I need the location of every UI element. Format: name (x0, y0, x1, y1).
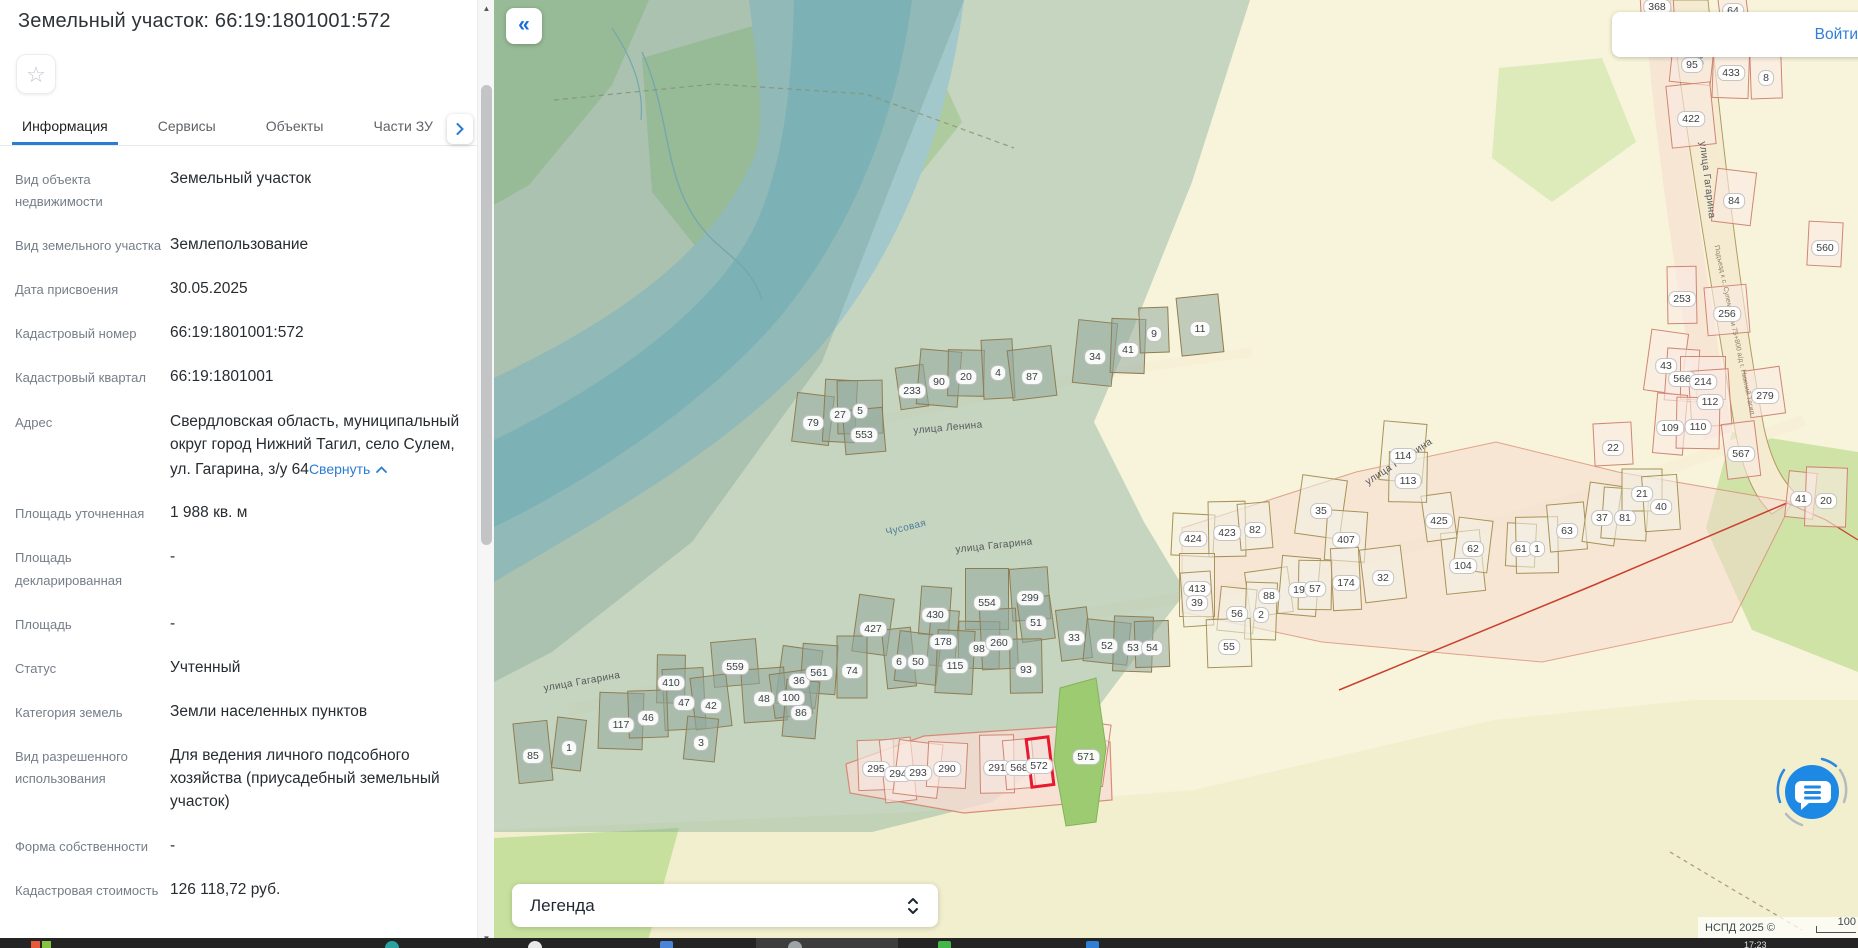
parcel-badge[interactable]: 9 (1146, 326, 1162, 342)
tab-bar: ИнформацияСервисыОбъектыЧасти ЗУСостав (0, 110, 477, 146)
field-label: Площадь уточненная (15, 501, 170, 525)
field-value: Земельный участок (170, 167, 465, 213)
panel-scrollbar[interactable]: ▲ ▼ (477, 0, 494, 948)
parcel-badge[interactable]: 41 (1790, 491, 1812, 507)
parcel-badge[interactable]: 113 (1395, 473, 1422, 489)
login-bar[interactable]: Войти (1612, 12, 1858, 57)
tab-Информация[interactable]: Информация (12, 110, 118, 145)
parcel-badge[interactable]: 4 (990, 365, 1006, 381)
parcel-badge[interactable]: 20 (955, 369, 977, 385)
parcel-badge[interactable]: 290 (933, 761, 961, 777)
field-row: Кадастровая стоимость126 118,72 руб. (15, 878, 477, 902)
taskbar-active-app[interactable] (756, 938, 898, 948)
parcel-badge[interactable]: 256 (1713, 306, 1741, 322)
parcel-badge[interactable]: 567 (1727, 446, 1755, 462)
windows-start-icon[interactable] (31, 941, 40, 948)
parcel-badge[interactable]: 90 (928, 374, 950, 390)
field-row: Дата присвоения30.05.2025 (15, 277, 477, 301)
parcel-badge[interactable]: 114 (1390, 448, 1417, 464)
parcel-badge[interactable]: 62 (1462, 541, 1484, 557)
parcel-badge[interactable]: 430 (921, 607, 949, 623)
parcel-badge[interactable]: 553 (850, 427, 878, 443)
parcel-badge[interactable]: 37 (1591, 510, 1613, 526)
scroll-up-icon[interactable]: ▲ (478, 0, 495, 16)
windows-taskbar[interactable]: 17:23 (0, 938, 1858, 948)
parcel-badge[interactable]: 32 (1372, 570, 1394, 586)
parcel-badge[interactable]: 55 (1218, 639, 1240, 655)
parcel-badge[interactable]: 110 (1685, 419, 1712, 435)
parcel-badge[interactable]: 100 (777, 690, 805, 706)
parcel-badge[interactable]: 47 (673, 695, 695, 711)
parcel-badge[interactable]: 56 (1226, 606, 1248, 622)
taskbar-app-icon-green[interactable] (938, 941, 951, 948)
taskbar-app-icon-white[interactable] (528, 941, 542, 948)
taskbar-app-icon-gray[interactable] (788, 941, 802, 948)
field-label: Адрес (15, 410, 170, 482)
parcel-badge[interactable]: 433 (1717, 65, 1745, 81)
field-value: - (170, 545, 465, 591)
taskbar-app-icon-blue[interactable] (660, 941, 673, 948)
app-window: Земельный участок: 66:19:1801001:572 ☆ И… (0, 0, 1858, 948)
field-value: 126 118,72 руб. (170, 878, 465, 902)
field-label: Площадь декларированная (15, 545, 170, 591)
field-value: 1 988 кв. м (170, 501, 465, 525)
taskbar-clock: 17:23 (1744, 940, 1767, 948)
parcel-badge[interactable]: 293 (904, 765, 932, 781)
parcel-badge[interactable]: 3 (693, 735, 709, 751)
field-label: Дата присвоения (15, 277, 170, 301)
parcel-badge[interactable]: 233 (898, 383, 926, 399)
tab-scroll-right-button[interactable] (447, 114, 473, 144)
collapse-panel-button[interactable]: « (506, 8, 542, 44)
taskbar-app-icon-blue2[interactable] (1086, 941, 1099, 948)
parcel-badge[interactable]: 52 (1096, 638, 1118, 654)
field-value: 66:19:1801001 (170, 365, 465, 389)
field-row: АдресСвердловская область, муниципальный… (15, 410, 477, 482)
tab-Сервисы[interactable]: Сервисы (148, 110, 226, 145)
field-label: Кадастровый номер (15, 321, 170, 345)
legend-panel[interactable]: Легенда (512, 884, 938, 927)
parcel-badge[interactable]: 93 (1015, 662, 1037, 678)
address-collapse-link[interactable]: Свернуть (309, 459, 387, 480)
parcel-badge[interactable]: 115 (942, 658, 969, 674)
parcel-badge[interactable]: 422 (1677, 111, 1705, 127)
parcel-badge[interactable]: 424 (1179, 531, 1207, 547)
field-value: 30.05.2025 (170, 277, 465, 301)
field-row: Форма собственности- (15, 834, 477, 858)
parcel-badge[interactable]: 427 (859, 621, 887, 637)
field-label: Кадастровый квартал (15, 365, 170, 389)
field-value: Свердловская область, муниципальный окру… (170, 410, 465, 482)
field-label: Статус (15, 656, 170, 680)
parcel-badge[interactable]: 21 (1631, 486, 1653, 502)
parcel-badge[interactable]: 50 (907, 654, 929, 670)
parcel-badge[interactable]: 178 (929, 634, 957, 650)
parcel-badge[interactable]: 174 (1332, 575, 1360, 591)
parcel-badge[interactable]: 33 (1063, 630, 1085, 646)
chevron-right-icon (456, 123, 464, 135)
parcel-badge[interactable]: 104 (1449, 558, 1477, 574)
parcel-badge[interactable]: 20 (1815, 493, 1837, 509)
parcel-badge[interactable]: 571 (1072, 749, 1100, 765)
map-scale: 100 (1816, 916, 1856, 933)
parcel-badge[interactable]: 88 (1258, 588, 1280, 604)
parcel-badge[interactable]: 425 (1425, 513, 1453, 529)
parcel-badge[interactable]: 299 (1016, 590, 1044, 606)
parcel-badge[interactable]: 42 (700, 698, 722, 714)
field-value: 66:19:1801001:572 (170, 321, 465, 345)
map-canvas[interactable]: улица Ленинаулица Гагаринаулица Гагарина… (494, 0, 1858, 948)
field-value: Земли населенных пунктов (170, 700, 465, 724)
field-value: - (170, 834, 465, 858)
field-row: Вид объекта недвижимостиЗемельный участо… (15, 167, 477, 213)
parcel-badge[interactable]: 1 (1529, 541, 1545, 557)
parcel-badge[interactable]: 253 (1668, 291, 1696, 307)
parcel-badge[interactable]: 54 (1141, 640, 1163, 656)
parcel-badge[interactable]: 81 (1614, 510, 1636, 526)
parcel-badge[interactable]: 214 (1689, 374, 1717, 390)
parcel-badge[interactable]: 410 (657, 675, 685, 691)
parcel-badge[interactable]: 560 (1811, 240, 1839, 256)
taskbar-app-icon-teal[interactable] (385, 941, 399, 948)
chat-bubble-icon (1772, 752, 1852, 832)
legend-label: Легенда (530, 896, 595, 916)
field-row: Площадь- (15, 612, 477, 636)
expand-collapse-icon[interactable] (906, 897, 920, 915)
parcel-badge[interactable]: 117 (608, 717, 635, 733)
parcel-badge[interactable]: 1 (561, 740, 577, 756)
field-label: Форма собственности (15, 834, 170, 858)
parcel-badge[interactable]: 95 (1681, 57, 1703, 73)
parcel-badge[interactable]: 35 (1310, 503, 1332, 519)
object-info-panel: Земельный участок: 66:19:1801001:572 ☆ И… (0, 0, 477, 948)
parcel-badge[interactable]: 112 (1697, 394, 1724, 410)
field-label: Вид земельного участка (15, 233, 170, 257)
parcel-badge[interactable]: 5 (852, 403, 868, 419)
parcel-badge[interactable]: 84 (1723, 193, 1745, 209)
parcel-badge[interactable]: 41 (1117, 342, 1139, 358)
parcel-badge[interactable]: 74 (841, 663, 863, 679)
parcel-badge[interactable]: 40 (1650, 499, 1672, 515)
star-icon: ☆ (26, 62, 46, 87)
field-value: Для ведения личного подсобного хозяйства… (170, 744, 465, 814)
parcel-badge[interactable]: 109 (1656, 420, 1684, 436)
parcel-badge[interactable]: 48 (753, 691, 775, 707)
chat-button[interactable] (1772, 752, 1852, 832)
parcel-badge[interactable]: 34 (1084, 349, 1106, 365)
parcel-badge[interactable]: 27 (829, 407, 851, 423)
parcel-badge[interactable]: 2 (1253, 607, 1269, 623)
field-row: Вид разрешенного использованияДля ведени… (15, 744, 477, 814)
parcel-badge[interactable]: 39 (1186, 595, 1208, 611)
field-label: Вид разрешенного использования (15, 744, 170, 814)
parcel-badge[interactable]: 57 (1304, 581, 1326, 597)
map-layers (494, 0, 1858, 948)
parcel-badge[interactable]: 63 (1556, 523, 1578, 539)
parcel-badge[interactable]: 423 (1213, 525, 1241, 541)
field-value: Учтенный (170, 656, 465, 680)
parcel-badge[interactable]: 22 (1602, 440, 1624, 456)
field-label: Вид объекта недвижимости (15, 167, 170, 213)
parcel-badge[interactable]: 260 (985, 635, 1013, 651)
field-label: Категория земель (15, 700, 170, 724)
favorite-button[interactable]: ☆ (16, 54, 56, 94)
field-value: Землепользование (170, 233, 465, 257)
scale-value: 100 (1838, 916, 1856, 928)
scrollbar-thumb[interactable] (481, 85, 492, 545)
parcel-badge[interactable]: 11 (1190, 321, 1211, 337)
parcel-badge[interactable]: 8 (1758, 70, 1774, 86)
field-label: Кадастровая стоимость (15, 878, 170, 902)
parcel-badge[interactable]: 407 (1332, 532, 1360, 548)
parcel-badge[interactable]: 79 (802, 415, 824, 431)
parcel-badge[interactable]: 279 (1751, 388, 1779, 404)
parcel-badge[interactable]: 87 (1021, 369, 1043, 385)
field-row: Категория земельЗемли населенных пунктов (15, 700, 477, 724)
parcel-badge[interactable]: 6 (891, 654, 907, 670)
field-row: Вид земельного участкаЗемлепользование (15, 233, 477, 257)
tab-Части ЗУ[interactable]: Части ЗУ (363, 110, 442, 145)
windows-start-icon2 (42, 941, 51, 948)
parcel-badge[interactable]: 86 (790, 705, 812, 721)
parcel-badge[interactable]: 554 (973, 595, 1001, 611)
parcel-badge[interactable]: 46 (637, 710, 659, 726)
page-title: Земельный участок: 66:19:1801001:572 (0, 0, 477, 33)
field-row: СтатусУчтенный (15, 656, 477, 680)
parcel-badge[interactable]: 82 (1244, 522, 1266, 538)
field-row: Кадастровый квартал66:19:1801001 (15, 365, 477, 389)
field-row: Кадастровый номер66:19:1801001:572 (15, 321, 477, 345)
chevron-up-icon (376, 466, 387, 473)
parcel-badge[interactable]: 51 (1025, 615, 1047, 631)
field-label: Площадь (15, 612, 170, 636)
parcel-badge[interactable]: 559 (721, 659, 749, 675)
field-value: - (170, 612, 465, 636)
parcel-badge-selected[interactable]: 572 (1025, 758, 1053, 774)
parcel-badge[interactable]: 85 (522, 748, 544, 764)
tab-Объекты[interactable]: Объекты (256, 110, 334, 145)
field-row: Площадь декларированная- (15, 545, 477, 591)
field-list: Вид объекта недвижимостиЗемельный участо… (0, 147, 477, 948)
field-row: Площадь уточненная1 988 кв. м (15, 501, 477, 525)
login-link[interactable]: Войти (1815, 26, 1858, 44)
parcel-badge[interactable]: 561 (805, 665, 833, 681)
